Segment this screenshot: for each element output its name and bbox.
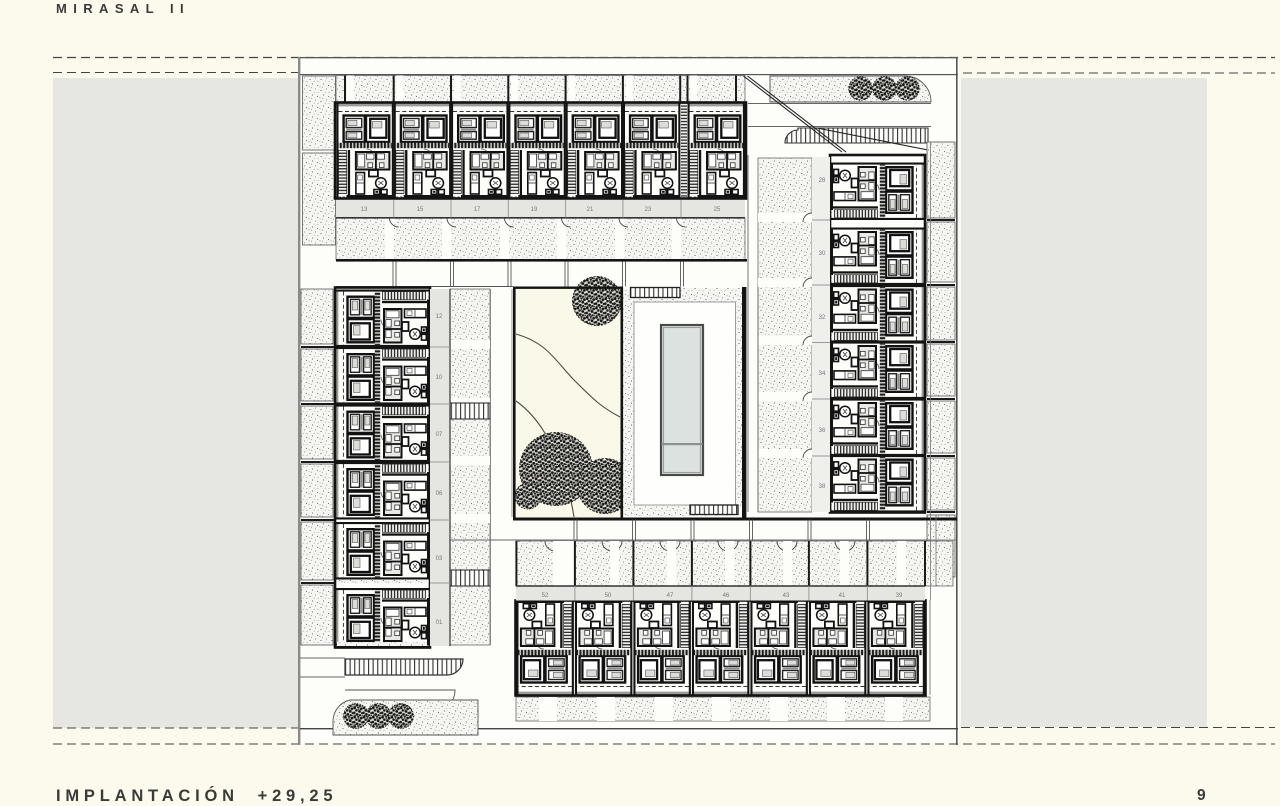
svg-text:34: 34 bbox=[819, 371, 826, 377]
svg-text:50: 50 bbox=[605, 593, 612, 599]
svg-text:19: 19 bbox=[531, 207, 538, 213]
svg-text:07: 07 bbox=[436, 432, 443, 438]
svg-text:01: 01 bbox=[436, 620, 443, 626]
svg-text:30: 30 bbox=[819, 251, 826, 257]
svg-text:38: 38 bbox=[819, 484, 826, 490]
svg-text:03: 03 bbox=[436, 556, 443, 562]
svg-text:28: 28 bbox=[819, 178, 826, 184]
svg-text:41: 41 bbox=[839, 593, 846, 599]
svg-text:12: 12 bbox=[436, 314, 443, 320]
svg-text:23: 23 bbox=[645, 207, 652, 213]
svg-text:17: 17 bbox=[474, 207, 481, 213]
svg-text:25: 25 bbox=[714, 207, 721, 213]
svg-text:39: 39 bbox=[896, 593, 903, 599]
svg-text:21: 21 bbox=[587, 207, 594, 213]
svg-text:47: 47 bbox=[667, 593, 674, 599]
svg-text:36: 36 bbox=[819, 428, 826, 434]
svg-text:06: 06 bbox=[436, 491, 443, 497]
svg-text:32: 32 bbox=[819, 315, 826, 321]
svg-text:13: 13 bbox=[361, 207, 368, 213]
svg-text:15: 15 bbox=[417, 207, 424, 213]
svg-text:43: 43 bbox=[783, 593, 790, 599]
svg-text:52: 52 bbox=[542, 593, 549, 599]
svg-text:10: 10 bbox=[436, 375, 443, 381]
svg-text:46: 46 bbox=[723, 593, 730, 599]
